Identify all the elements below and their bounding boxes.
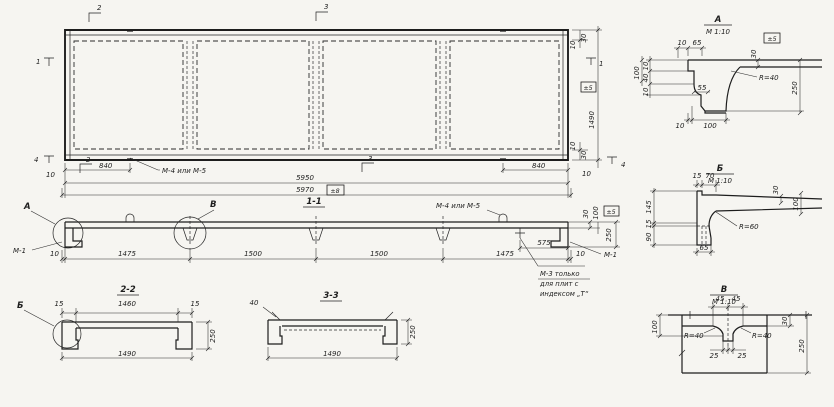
detail-b-title: Б <box>717 164 724 174</box>
plan-dim-1490: 1490 <box>588 111 596 129</box>
plan-marker-1-right: 1 <box>599 60 603 68</box>
plan-dim-edge-left: 10 <box>46 171 55 179</box>
detail-b-dim-70: 70 <box>706 172 715 180</box>
m3-note-line3: индексом „Т“ <box>540 290 589 298</box>
s22-dim-1490: 1490 <box>118 350 136 358</box>
detail-b-dim-15-left: 15 <box>645 219 653 228</box>
s11-dim-100: 100 <box>592 206 600 220</box>
section-1-1: 1-1 А В М-1 М-1 М-4 или М-5 М-3 только д… <box>13 197 620 298</box>
detail-ref-a: А <box>23 202 31 212</box>
detail-a-dim-lines <box>640 46 804 124</box>
detail-b-profile <box>697 191 822 245</box>
plan-hidden-ribs <box>187 41 446 149</box>
detail-a-radius: R=40 <box>759 74 779 82</box>
detail-a-dim-65: 65 <box>693 39 702 47</box>
s33-dim-250: 250 <box>409 325 417 339</box>
blueprint-sheet: 2 3 2 3 1 4 1 4 840 840 10 10 5950 5970 … <box>0 0 834 407</box>
dim-575: 575 <box>537 239 551 247</box>
detail-circle-b <box>53 320 81 348</box>
section-2-2-profile <box>62 322 192 349</box>
s22-dim-1460: 1460 <box>118 300 136 308</box>
detail-b-dim-65: 65 <box>700 244 709 252</box>
s11-dim-250: 250 <box>605 228 613 242</box>
s11-dim-30: 30 <box>582 209 590 218</box>
detail-v-view: В М 1:10 R=40 R=40 45 45 100 30 25 25 25… <box>651 285 812 375</box>
detail-b-dim-145: 145 <box>645 200 653 214</box>
plan-tol-5970: ±8 <box>330 188 339 195</box>
detail-v-dim-30: 30 <box>781 316 789 325</box>
detail-a-title: А <box>714 15 722 25</box>
detail-a-dim-10-a: 10 <box>642 61 650 70</box>
section-1-1-profile <box>65 222 568 247</box>
detail-a-dim-10-b: 10 <box>642 87 650 96</box>
plan-tol-1490: ±5 <box>583 85 592 92</box>
detail-b-radius-leader <box>716 212 737 226</box>
dim-10-right: 10 <box>576 250 585 258</box>
s33-dim-1490: 1490 <box>323 350 341 358</box>
plan-dim-10-top: 10 <box>569 40 577 49</box>
section-1-1-title: 1-1 <box>306 197 321 207</box>
detail-v-radius-right: R=40 <box>752 332 772 340</box>
detail-v-dim-45-right: 45 <box>732 295 741 303</box>
detail-a-dim-100-left: 100 <box>633 66 641 80</box>
detail-a-dim-10-top: 10 <box>678 39 687 47</box>
dim-10-left: 10 <box>50 250 59 258</box>
detail-b-dim-100: 100 <box>792 197 800 211</box>
detail-a-dim-55: 55 <box>698 84 707 92</box>
s22-dim-15-right: 15 <box>191 300 200 308</box>
section-3-3-profile <box>268 320 397 344</box>
section-2-2: 2-2 Б 15 1460 15 1490 250 <box>17 285 217 361</box>
detail-a-profile <box>688 60 822 113</box>
section-2-2-b-leader <box>24 310 54 326</box>
detail-v-title: В <box>721 285 727 295</box>
detail-a-tol: ±5 <box>767 36 776 43</box>
m3-mark <box>515 228 525 238</box>
s11-tol-5: ±5 <box>606 209 615 216</box>
detail-b-dim-90: 90 <box>645 232 653 241</box>
plan-dim-30-top: 30 <box>580 33 588 42</box>
s33-dim-40: 40 <box>250 299 259 307</box>
detail-v-dim-25-left: 25 <box>710 352 719 360</box>
label-m1-left: М-1 <box>13 247 26 255</box>
section-3-3: 3-3 40 1490 250 <box>250 291 417 361</box>
detail-v-dim-25-right: 25 <box>738 352 747 360</box>
detail-ref-v: В <box>210 200 216 210</box>
detail-v-dim-100: 100 <box>651 320 659 334</box>
plan-dim-5950: 5950 <box>296 174 314 182</box>
plan-lifting-loop-marks <box>127 31 506 159</box>
detail-a-dim-40: 40 <box>642 73 650 82</box>
plan-outline <box>65 30 568 160</box>
plan-label-m4m5: М-4 или М-5 <box>162 167 207 175</box>
detail-b-radius: R=60 <box>739 223 759 231</box>
section-1-1-label-m4m5: М-4 или М-5 <box>436 202 481 210</box>
plan-dim-edge-right: 10 <box>582 170 591 178</box>
plan-dim-lines <box>60 163 573 198</box>
section-3-3-bar-ticks <box>272 312 393 320</box>
detail-v-dim-250: 250 <box>798 339 806 353</box>
drawing-canvas: 2 3 2 3 1 4 1 4 840 840 10 10 5950 5970 … <box>0 0 834 407</box>
section-3-3-title: 3-3 <box>323 291 338 301</box>
detail-b-dim-30: 30 <box>772 185 780 194</box>
detail-a-dim-250: 250 <box>791 81 799 95</box>
plan-dim-840-left: 840 <box>99 162 113 170</box>
plan-marker-1-left: 1 <box>36 58 40 66</box>
dim-1475-2: 1475 <box>496 250 514 258</box>
plan-marker-4-right: 4 <box>621 161 625 169</box>
section-1-1-rib-notches <box>183 228 450 240</box>
detail-a-dim-100-bottom: 100 <box>703 122 717 130</box>
detail-ref-b: Б <box>17 301 24 311</box>
section-1-1-rib-centerlines <box>190 216 443 246</box>
detail-b-view: Б М 1:10 R=60 15 70 145 15 90 30 100 65 <box>645 164 822 256</box>
detail-v-radius-leaders <box>704 328 751 333</box>
m3-note-line2: для плит с <box>539 280 579 288</box>
s22-dim-15-left: 15 <box>55 300 64 308</box>
section-2-2-dims <box>60 308 212 361</box>
plan-marker-2-top: 2 <box>97 4 102 12</box>
detail-a-scale: М 1:10 <box>706 28 731 36</box>
plan-inner-edges <box>65 30 568 160</box>
plan-dim-5970: 5970 <box>296 186 314 194</box>
detail-v-profile <box>668 315 812 373</box>
section-2-2-title: 2-2 <box>120 285 135 295</box>
plan-dim-840-right: 840 <box>532 162 546 170</box>
plan-marker-3-bottom: 3 <box>368 155 372 163</box>
m3-note-line1: М-3 только <box>540 270 580 278</box>
detail-v-dim-45-left: 45 <box>716 295 725 303</box>
label-m1-right: М-1 <box>604 251 617 259</box>
dim-1500-1: 1500 <box>244 250 262 258</box>
detail-a-dim-30: 30 <box>750 49 758 58</box>
plan-marker-3-top: 3 <box>324 3 328 11</box>
detail-b-dim-15-top: 15 <box>693 172 702 180</box>
dim-1475-1: 1475 <box>118 250 136 258</box>
plan-marker-4-left: 4 <box>34 156 38 164</box>
detail-a-dim-10-bottom: 10 <box>676 122 685 130</box>
plan-dim-10-bottom: 10 <box>569 141 577 150</box>
detail-a-view: А М 1:10 ±5 R=40 10 65 30 100 10 40 10 5… <box>633 15 822 130</box>
plan-view: 2 3 2 3 1 4 1 4 840 840 10 10 5950 5970 … <box>34 3 625 198</box>
plan-marker-2-bottom: 2 <box>86 156 91 164</box>
plan-hidden-bays <box>74 41 559 149</box>
section-1-1-lifting-loops <box>126 214 507 222</box>
dim-1500-2: 1500 <box>370 250 388 258</box>
s22-dim-250: 250 <box>209 329 217 343</box>
detail-b-dim-lines <box>650 180 803 256</box>
plan-dim-30-bottom: 30 <box>580 150 588 159</box>
